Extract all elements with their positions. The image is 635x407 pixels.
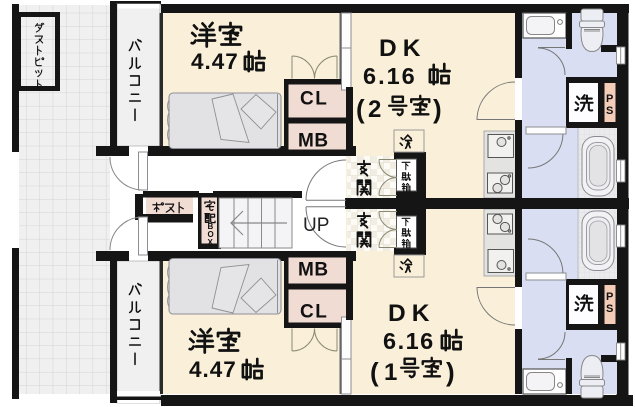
svg-text:(: ( <box>370 357 379 387</box>
svg-text:(: ( <box>356 94 365 124</box>
svg-text:S: S <box>606 105 613 117</box>
svg-text:4.47: 4.47 <box>189 357 237 382</box>
svg-text:DK: DK <box>379 35 426 62</box>
svg-text:CL: CL <box>300 302 328 323</box>
svg-text:): ) <box>433 94 442 124</box>
svg-text:1: 1 <box>384 359 397 386</box>
svg-text:4.47: 4.47 <box>191 49 239 74</box>
svg-text:6.16: 6.16 <box>363 63 417 89</box>
svg-text:S: S <box>606 303 613 315</box>
svg-text:): ) <box>446 357 455 387</box>
svg-text:2: 2 <box>368 96 381 123</box>
svg-text:DK: DK <box>388 300 435 327</box>
svg-text:MB: MB <box>298 131 329 152</box>
svg-text:P: P <box>606 291 613 303</box>
svg-text:CL: CL <box>300 89 328 110</box>
svg-text:UP: UP <box>303 215 329 236</box>
svg-text:MB: MB <box>298 260 329 281</box>
svg-text:P: P <box>606 93 613 105</box>
svg-text:X: X <box>208 238 214 247</box>
svg-text:6.16: 6.16 <box>383 328 435 354</box>
